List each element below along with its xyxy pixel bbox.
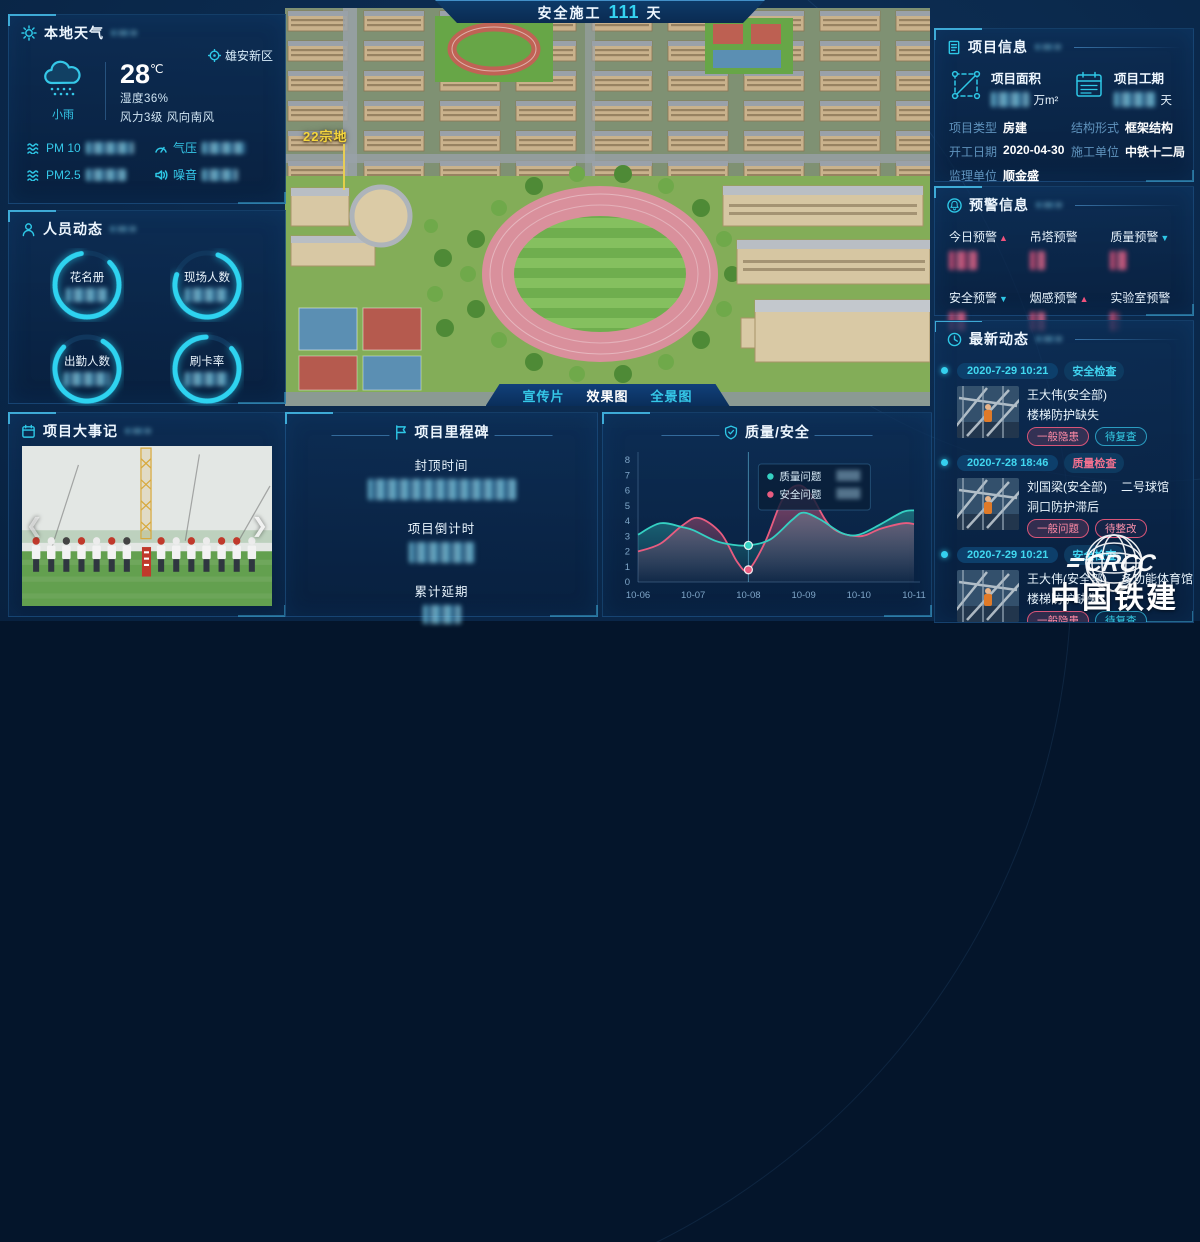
svg-text:质量问题: 质量问题 [779,470,821,483]
gauge-onsite-count[interactable]: 现场人数 [160,248,254,322]
metric-pm10: PM 10 [27,139,148,156]
gauge-label: 花名册 [70,269,105,285]
field-label: 项目类型 [949,119,997,136]
milestone-label: 封顶时间 [286,455,597,474]
news-tag: 待复查 [1095,611,1147,623]
svg-text:安全问题: 安全问题 [779,488,821,501]
news-issue: 楼梯防护缺失 [1027,406,1185,423]
temperature-value: 28 [120,59,150,89]
news-issue: 楼梯防护缺失 [1027,590,1185,607]
news-panel-title: 最新动态 [969,329,1029,349]
warning-label: 烟感预警 [1030,291,1078,305]
wind-label: 风力3级 风向南风 [120,109,215,125]
svg-text:2: 2 [625,547,630,558]
news-tag: 待整改 [1095,519,1147,538]
svg-text:10-11: 10-11 [902,590,926,601]
redacted-value [1030,251,1045,270]
weather-panel: 本地天气 雄安新区 小雨 2 [8,14,286,204]
field-label: 监理单位 [949,167,997,184]
milestone-panel: 项目里程碑 封顶时间 项目倒计时 累计延期 [285,412,598,617]
header-line [1075,205,1181,206]
waves-icon [27,169,41,181]
milestone-item: 封顶时间 [286,455,597,505]
field-value: 2020-04-30 [1003,143,1064,160]
redacted-value [86,169,126,181]
temperature-unit: ℃ [150,62,163,76]
redacted-value [86,142,134,154]
redacted-value [1110,251,1127,270]
news-type-badge: 质量检查 [1064,453,1124,473]
field-value: 中铁十二局 [1125,143,1185,160]
header-line [1074,47,1181,48]
gauge-label: 现场人数 [184,269,230,285]
document-icon [947,40,961,55]
warnings-panel: 预警信息 今日预警▲ 吊塔预警 质量预警▼ 安全预警▼ 烟感预警▲ [934,186,1194,316]
news-date-badge: 2020-7-29 10:21 [957,547,1058,563]
site-parcel-label: 22宗地 [303,126,347,145]
stat-unit: 万m² [1033,95,1058,107]
news-tag: 待复查 [1095,427,1147,446]
milestone-panel-title: 项目里程碑 [415,422,490,442]
project-info-panel: 项目信息 项目面积 万m² [934,28,1194,182]
speaker-icon [154,169,168,181]
main-view: 22宗地 宣传片 效果图 全景图 [285,8,930,406]
svg-text:6: 6 [625,486,630,497]
weather-panel-title: 本地天气 [44,23,104,43]
field-label: 结构形式 [1071,119,1119,136]
warning-today: 今日预警▲ [949,228,1026,275]
redacted-value [64,372,110,386]
warning-label: 安全预警 [949,291,997,305]
personnel-panel-title: 人员动态 [43,219,103,239]
redacted-value [185,288,229,302]
redacted-value [949,251,977,270]
field-value: 顺金盛 [1003,167,1039,184]
metric-label: 噪音 [173,166,197,183]
gauge-roster[interactable]: 花名册 [40,248,134,322]
carousel-next-button[interactable]: ❯ [251,516,268,536]
svg-text:0: 0 [625,577,630,588]
redacted-value [368,479,516,500]
news-photo[interactable] [957,386,1019,438]
redacted-value [991,92,1029,107]
field-start-date: 开工日期 2020-04-30 [949,143,1067,160]
field-structure: 结构形式 框架结构 [1071,119,1185,136]
svg-text:10-10: 10-10 [847,590,871,601]
warning-label: 质量预警 [1110,230,1158,244]
metric-label: PM 10 [46,141,81,155]
view-button-panorama[interactable]: 全景图 [651,386,693,405]
news-photo[interactable] [957,478,1019,530]
redacted-value [185,372,229,386]
field-project-type: 项目类型 房建 [949,119,1067,136]
events-photo[interactable]: ❮ ❯ [22,446,272,606]
redacted-header-deco [1035,44,1061,50]
timeline-dot [941,459,948,466]
location-target-icon [208,49,221,62]
flag-icon [394,425,408,440]
timeline-dot [941,367,948,374]
calendar-icon [21,424,36,439]
waves-icon [27,142,41,154]
shield-icon [724,425,738,440]
chart-panel-title: 质量/安全 [745,422,810,442]
news-tag: 一般隐患 [1027,427,1089,446]
stat-project-area: 项目面积 万m² [949,68,1062,109]
carousel-prev-button[interactable]: ❮ [26,516,43,536]
trend-arrow-icon: ▲ [1080,294,1089,304]
news-photo[interactable] [957,570,1019,622]
milestone-label: 项目倒计时 [286,518,597,537]
metric-label: 气压 [173,139,197,156]
timeline-dot [941,551,948,558]
warning-label: 吊塔预警 [1030,230,1078,244]
redacted-header-deco [125,428,151,434]
trend-arrow-icon: ▼ [1160,233,1169,243]
warning-label: 实验室预警 [1110,291,1170,305]
news-type-badge: 安全检查 [1064,361,1124,381]
trend-arrow-icon: ▲ [999,233,1008,243]
redacted-header-deco [111,30,137,36]
svg-text:7: 7 [625,470,630,481]
gauge-label: 刷卡率 [190,353,225,369]
svg-text:5: 5 [625,501,630,512]
gauge-swipe-rate[interactable]: 刷卡率 [160,332,254,406]
news-type-badge: 安全检查 [1064,545,1124,565]
clock-icon [947,332,962,347]
news-location: 多功能体育馆 [1121,572,1193,586]
stat-unit: 天 [1160,95,1172,107]
calendar-icon [1072,68,1106,102]
header-line [1075,339,1181,340]
field-supervisor: 监理单位 顺金盛 [949,167,1067,184]
project-info-panel-title: 项目信息 [968,37,1028,57]
milestone-label: 累计延期 [286,581,597,600]
svg-text:10-07: 10-07 [681,590,705,601]
warnings-panel-title: 预警信息 [969,195,1029,215]
divider [105,62,106,120]
field-label: 施工单位 [1071,143,1119,160]
field-value: 框架结构 [1125,119,1173,136]
redacted-value [409,542,475,563]
news-date-badge: 2020-7-29 10:21 [957,363,1058,379]
trend-arrow-icon: ▼ [999,294,1008,304]
header-wing [326,428,390,436]
warning-quality: 质量预警▼ [1110,228,1187,275]
gauge-attendance-count[interactable]: 出勤人数 [40,332,134,406]
header-wing [494,428,558,436]
redacted-value [66,288,108,302]
metric-pm25: PM2.5 [27,166,148,183]
news-entry[interactable]: 2020-7-29 10:21 安全检查 王大伟(安全部) 楼梯防护缺失 一般隐… [935,361,1193,446]
banner-suffix: 天 [647,3,663,23]
stat-label: 项目工期 [1114,68,1172,87]
stat-project-duration: 项目工期 天 [1072,68,1185,109]
site-label-leader-line [343,144,345,190]
field-value: 房建 [1003,119,1027,136]
banner-prefix: 安全施工 [537,3,601,23]
metric-noise: 噪音 [154,166,275,183]
warning-label: 今日预警 [949,230,997,244]
rain-cloud-icon [40,59,86,99]
redacted-header-deco [1036,202,1062,208]
field-label: 开工日期 [949,143,997,160]
header-wing [814,428,878,436]
svg-text:10-08: 10-08 [736,590,760,601]
area-icon [949,68,983,102]
top-title-banner: 安全施工 111 天 [435,0,765,24]
milestone-item: 累计延期 [286,581,597,629]
redacted-value [202,142,246,154]
svg-text:8: 8 [625,455,630,466]
news-date-badge: 2020-7-28 18:46 [957,455,1058,471]
alarm-bell-icon [947,198,962,213]
milestone-item: 项目倒计时 [286,518,597,568]
metric-pressure: 气压 [154,139,275,156]
events-panel-title: 项目大事记 [43,421,118,441]
metric-label: PM2.5 [46,168,81,182]
dashboard-background: 安全施工 111 天 [0,0,1200,621]
redacted-value [423,605,461,624]
stat-label: 项目面积 [991,68,1058,87]
quality-safety-chart: 01234567810-0610-0710-0810-0910-1010-11质… [608,444,926,612]
banner-days: 111 [608,2,639,23]
sun-icon [21,25,37,41]
redacted-value [202,169,238,181]
header-wing [656,428,720,436]
humidity-label: 湿度36% [120,90,215,106]
svg-text:1: 1 [625,562,630,573]
svg-text:10-09: 10-09 [791,590,815,601]
events-panel: 项目大事记 [8,412,286,617]
redacted-header-deco [1036,336,1062,342]
weather-condition: 小雨 [31,106,95,122]
news-person: 王大伟(安全部) [1027,388,1107,402]
view-switcher: 宣传片 效果图 全景图 [486,384,730,406]
news-panel: 最新动态 2020-7-29 10:21 安全检查 王大伟(安全部) 楼梯防护缺… [934,320,1194,623]
news-person: 刘国梁(安全部) [1027,480,1107,494]
svg-text:3: 3 [625,531,630,542]
redacted-value [1114,92,1156,107]
aerial-site-model[interactable] [285,8,930,406]
gauge-label: 出勤人数 [64,353,110,369]
news-tag: 一般问题 [1027,519,1089,538]
svg-text:10-06: 10-06 [626,590,650,601]
redacted-header-deco [110,226,136,232]
field-contractor: 施工单位 中铁十二局 [1071,143,1185,160]
news-entry[interactable]: 2020-7-28 18:46 质量检查 刘国梁(安全部)二号球馆 洞口防护滞后… [935,453,1193,538]
quality-safety-panel: 质量/安全 01234567810-0610-0710-0810-0910-10… [602,412,932,617]
news-issue: 洞口防护滞后 [1027,498,1185,515]
svg-text:4: 4 [625,516,630,527]
gauge-icon [154,142,168,154]
personnel-panel: 人员动态 花名册 现场人数 出勤人数 刷卡率 [8,210,286,404]
news-person: 王大伟(安全部) [1027,572,1107,586]
news-tag: 一般隐患 [1027,611,1089,623]
warning-crane: 吊塔预警 [1030,228,1107,275]
person-icon [21,222,36,237]
location-selector[interactable]: 雄安新区 [208,47,273,64]
view-button-promo[interactable]: 宣传片 [522,386,564,405]
news-entry[interactable]: 2020-7-29 10:21 安全检查 王大伟(安全部)多功能体育馆 楼梯防护… [935,545,1193,623]
news-location: 二号球馆 [1121,480,1169,494]
location-label: 雄安新区 [225,47,273,64]
view-button-render[interactable]: 效果图 [586,386,628,405]
